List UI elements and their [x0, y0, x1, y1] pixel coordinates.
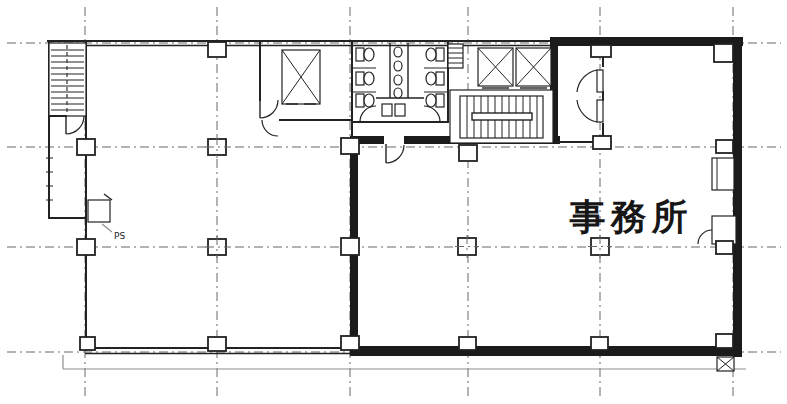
office-room-label: 事務所 [569, 197, 693, 237]
column [459, 337, 476, 350]
column [341, 138, 359, 154]
column [459, 145, 477, 161]
column [591, 45, 611, 57]
column [716, 334, 733, 348]
column [716, 140, 733, 153]
pipe-shaft-label: PS [114, 231, 125, 241]
floor-plan-canvas: PS 事務所 [0, 0, 787, 404]
column [716, 241, 733, 254]
column [80, 337, 95, 350]
staircase-core-icon [450, 90, 553, 143]
corner-x-box-icon [717, 357, 734, 371]
column [341, 336, 359, 350]
office-door-gap [384, 134, 404, 146]
column [591, 337, 608, 350]
column [77, 239, 95, 255]
duct-shaft-icon [448, 44, 463, 68]
column [208, 337, 226, 351]
elevator-west-icon [282, 50, 320, 104]
column [77, 139, 95, 155]
column [208, 42, 226, 57]
column [714, 44, 733, 62]
column [341, 238, 359, 255]
floor-plan: PS 事務所 [0, 0, 787, 404]
column [593, 136, 611, 149]
